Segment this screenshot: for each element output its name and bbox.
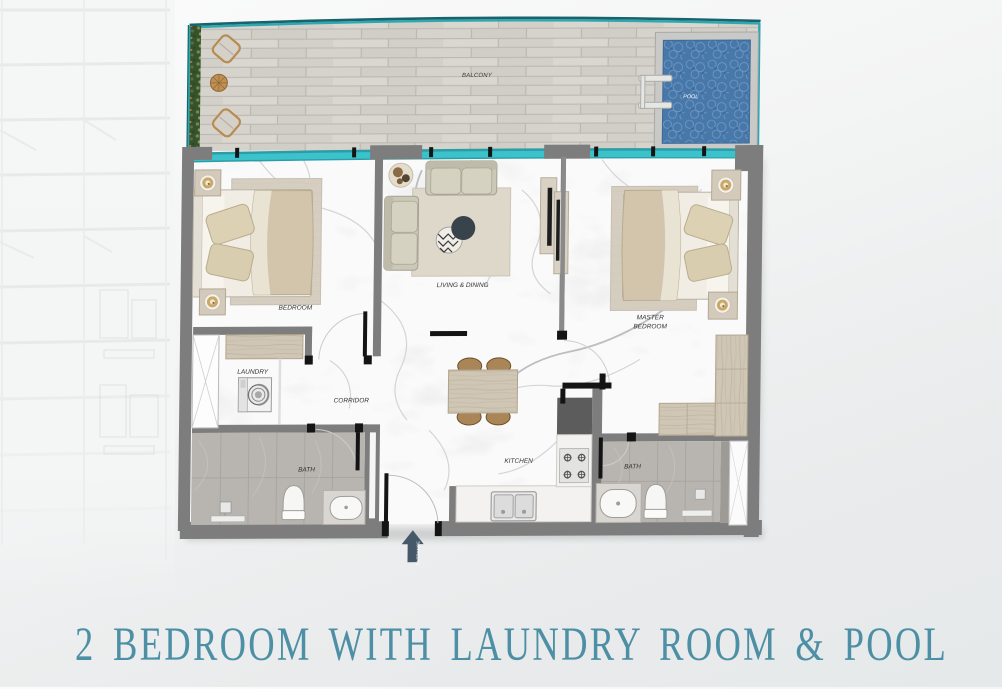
svg-text:CORRIDOR: CORRIDOR	[334, 397, 370, 404]
svg-text:KITCHEN: KITCHEN	[504, 458, 533, 465]
svg-text:BATH: BATH	[298, 467, 315, 474]
svg-text:POOL: POOL	[683, 94, 698, 100]
svg-text:BEDROOM: BEDROOM	[633, 323, 667, 330]
svg-text:BEDROOM: BEDROOM	[279, 305, 313, 312]
svg-text:BATH: BATH	[624, 463, 641, 470]
svg-text:BALCONY: BALCONY	[462, 73, 493, 79]
svg-text:MASTER: MASTER	[637, 314, 664, 321]
svg-text:LAUNDRY: LAUNDRY	[237, 369, 269, 376]
svg-text:ENTRANCE: ENTRANCE	[415, 541, 420, 566]
svg-text:LIVING & DINING: LIVING & DINING	[437, 282, 489, 289]
